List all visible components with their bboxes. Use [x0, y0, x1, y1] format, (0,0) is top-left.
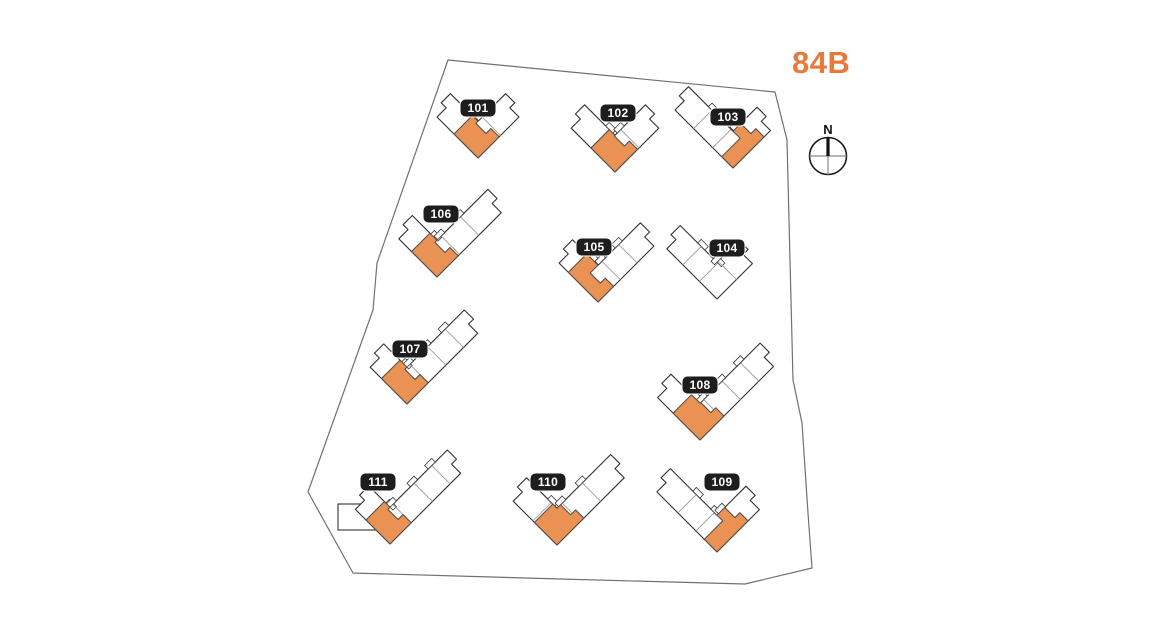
building-badge-label: 102 — [608, 106, 629, 120]
building-badge-label: 105 — [584, 240, 605, 254]
building-101[interactable]: 101 — [437, 94, 519, 158]
building-104[interactable]: 104 — [667, 226, 753, 300]
buildings-layer: 101102103104105106107108109110111 — [338, 87, 774, 552]
building-badge-label: 101 — [468, 101, 489, 115]
building-110[interactable]: 110 — [513, 455, 624, 546]
building-badge-label: 106 — [431, 207, 452, 221]
compass: N — [810, 122, 847, 175]
building-108[interactable]: 108 — [658, 343, 774, 440]
building-106[interactable]: 106 — [399, 189, 502, 277]
building-badge-label: 111 — [368, 475, 388, 489]
site-plan: 101102103104105106107108109110111 N 84B — [0, 0, 1160, 640]
plan-title: 84B — [792, 45, 850, 81]
building-103[interactable]: 103 — [675, 87, 771, 168]
building-111[interactable]: 111 — [338, 450, 461, 544]
compass-north-label: N — [823, 122, 832, 137]
building-outline — [667, 226, 753, 300]
building-badge-label: 109 — [712, 475, 733, 489]
building-badge-label: 108 — [690, 378, 711, 392]
building-badge-label: 110 — [538, 475, 558, 489]
site-plan-svg: 101102103104105106107108109110111 N — [0, 0, 1160, 640]
building-102[interactable]: 102 — [571, 104, 659, 172]
building-105[interactable]: 105 — [559, 223, 654, 302]
building-badge-label: 104 — [717, 241, 738, 255]
building-badge-label: 107 — [400, 342, 421, 356]
building-109[interactable]: 109 — [657, 469, 760, 552]
building-badge-label: 103 — [718, 110, 739, 124]
building-107[interactable]: 107 — [370, 310, 478, 404]
